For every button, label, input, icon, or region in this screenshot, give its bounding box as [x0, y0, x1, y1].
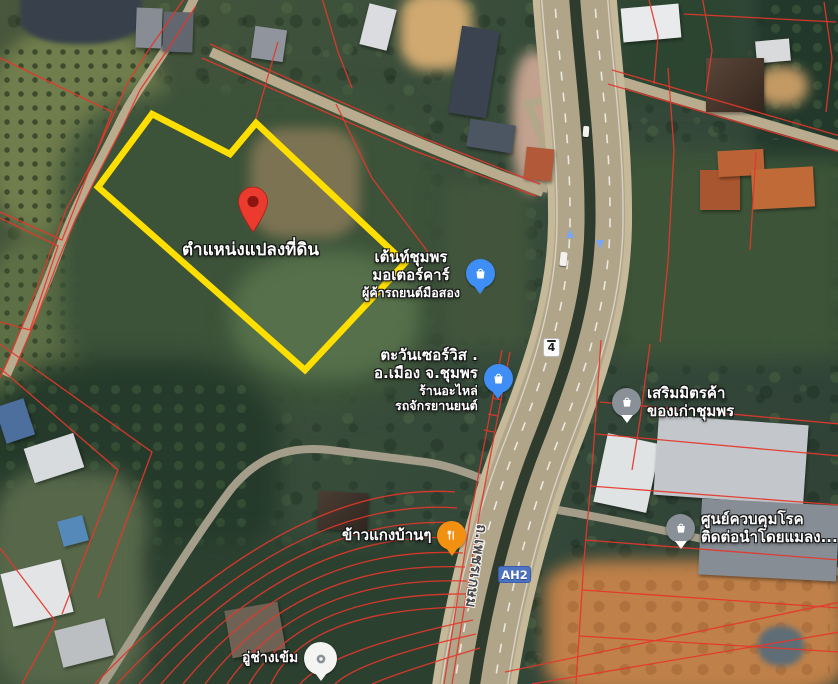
building	[523, 147, 554, 182]
poi-subline: รถจักรยานยนต์	[374, 398, 478, 413]
building-warehouse	[593, 433, 660, 513]
poi-disease-control: ศูนย์ควบคุมโรค ติดต่อนำโดยแมลง...	[666, 510, 838, 547]
terrain-field-left	[0, 235, 115, 425]
pond-bottomright	[758, 626, 804, 666]
roads-layer	[0, 0, 838, 684]
shield-number: 4	[548, 342, 556, 354]
cadastral-line	[576, 340, 601, 684]
building	[0, 398, 35, 443]
terrain-field-topleft	[0, 30, 165, 240]
cadastral-line	[585, 540, 838, 560]
cadastral-line	[608, 84, 838, 152]
cadastral-line	[0, 344, 152, 598]
cadastral-line	[0, 58, 112, 240]
road-winding-left	[6, 0, 197, 376]
building	[717, 149, 764, 177]
highway-median	[473, 0, 590, 684]
terrain-soil-frontage	[512, 52, 558, 192]
cadastral-strip	[271, 607, 471, 684]
cadastral-strip	[335, 634, 476, 684]
cadastral-line	[16, 6, 196, 366]
poi-line: ของเก่าชุมพร	[647, 402, 734, 420]
cadastral-line	[210, 44, 540, 184]
terrain-soil-mottle	[560, 575, 830, 684]
vegetation-texture	[0, 0, 838, 684]
poi-line: อ.เมือง จ.ชุมพร	[374, 364, 478, 382]
poi-line: ข้าวแกงบ้านๆ	[342, 526, 431, 544]
store-icon[interactable]	[612, 388, 641, 417]
cadastral-line	[202, 58, 536, 196]
building	[135, 8, 162, 49]
cadastral-line	[596, 434, 838, 456]
building	[751, 166, 815, 209]
terrain-sand-top	[400, 0, 472, 70]
building	[359, 3, 396, 51]
poi-line: ศูนย์ควบคุมโรค	[701, 510, 838, 528]
pond-topleft	[20, 0, 142, 44]
cadastral-line	[0, 218, 58, 330]
building	[54, 618, 114, 667]
parcel-boundary	[98, 114, 405, 370]
cadastral-strip	[227, 581, 467, 684]
cadastral-line	[0, 548, 56, 684]
road-bottomright	[558, 510, 838, 572]
shopping-bag-icon[interactable]	[484, 364, 513, 393]
building	[0, 559, 73, 626]
terrain-forest-parcel	[60, 90, 440, 410]
terrain-orchard-dots	[0, 45, 150, 230]
highway-surface	[473, 0, 590, 684]
cadastral-strip	[372, 648, 480, 684]
poi-label: อู่ช่างเข้ม	[242, 650, 298, 667]
building	[317, 491, 369, 532]
cadastral-line	[0, 0, 186, 382]
road-side-right	[610, 78, 838, 146]
parcel-boundary-layer	[0, 0, 838, 684]
car-repair-icon[interactable]	[304, 642, 337, 675]
poi-line: ติดต่อนำโดยแมลง...	[701, 528, 838, 546]
cadastral-strip	[139, 522, 459, 684]
terrain-bare-soil-bottomright	[545, 560, 838, 684]
building	[224, 602, 286, 659]
terrain-palm-dots-2	[765, 0, 838, 140]
parcel-location-label: ตำแหน่งแปลงที่ดิน	[148, 236, 353, 263]
cadastral-line	[532, 632, 838, 684]
cadastral-line	[336, 104, 428, 252]
road-name-label: ถ.เพชรเกษม	[462, 505, 496, 628]
cadastral-line	[702, 0, 712, 92]
poi-subline: ผู้ค้ารถยนต์มือสอง	[362, 285, 460, 300]
poi-line: ตะวันเซอร์วิส .	[374, 346, 478, 364]
poi-tawan-service: ตะวันเซอร์วิส . อ.เมือง จ.ชุมพร ร้านอะไห…	[374, 346, 513, 413]
building	[24, 433, 85, 483]
building-pavilion	[706, 58, 764, 112]
store-icon[interactable]	[666, 514, 695, 543]
shopping-bag-icon[interactable]	[466, 259, 495, 288]
cadastral-strip	[249, 594, 469, 684]
road-diagonal-top	[211, 52, 543, 192]
location-pin[interactable]	[236, 186, 270, 234]
highway-shoulder	[473, 0, 590, 684]
poi-label: ศูนย์ควบคุมโรค ติดต่อนำโดยแมลง...	[701, 510, 838, 547]
building	[621, 4, 682, 43]
cadastral-line	[0, 368, 118, 614]
traffic-arrow-up	[566, 229, 574, 238]
cadastral-line	[612, 70, 838, 136]
terrain-layer	[0, 0, 838, 684]
cadastral-line	[505, 602, 838, 672]
terrain-palms-bottomleft	[0, 360, 280, 580]
cadastral-line	[824, 2, 832, 112]
building	[162, 11, 193, 52]
poi-line: เต้นท์ชุมพร	[362, 248, 460, 266]
highway-shield: 4	[543, 338, 560, 357]
poi-label: ตะวันเซอร์วิส . อ.เมือง จ.ชุมพร ร้านอะไห…	[374, 346, 478, 413]
terrain-palm-dots	[0, 380, 250, 560]
building-warehouse	[698, 498, 838, 581]
terrain-soil-patch	[756, 66, 808, 106]
cadastral-line	[255, 42, 278, 122]
traffic-arrow-down	[596, 240, 604, 249]
building	[466, 119, 516, 154]
cadastral-strip	[95, 491, 455, 684]
building	[57, 515, 89, 547]
cadastral-line	[580, 636, 838, 652]
poi-serm-mit: เสริมมิตรค้า ของเก่าชุมพร	[612, 384, 734, 421]
route-badge-ah2: AH2	[498, 566, 531, 583]
building-warehouse	[653, 415, 808, 505]
cadastral-lines-layer	[0, 0, 838, 684]
building	[755, 39, 791, 64]
poi-tent-chumphon: เต้นท์ชุมพร มอเตอร์คาร์ ผู้ค้ารถยนต์มือส…	[362, 248, 495, 300]
road-frontage-top	[527, 78, 612, 192]
satellite-map[interactable]: ตำแหน่งแปลงที่ดิน เต้นท์ชุมพร มอเตอร์คาร…	[0, 0, 838, 684]
terrain-palms-topright	[755, 0, 838, 155]
poi-au-chang-khem: อู่ช่างเข้ม	[242, 642, 337, 675]
buildings-layer	[0, 0, 838, 684]
cadastral-line	[582, 590, 838, 608]
cadastral-line	[660, 68, 674, 342]
cadastral-line	[590, 486, 838, 505]
cadastral-strip	[117, 507, 457, 684]
building	[251, 26, 287, 62]
terrain-fields-bottomleft	[0, 470, 150, 684]
cadastral-line	[684, 14, 836, 22]
poi-khao-gaeng: ข้าวแกงบ้านๆ	[342, 521, 466, 550]
building	[448, 26, 499, 119]
cadastral-line	[750, 152, 756, 250]
terrain-trees-top	[620, 0, 740, 100]
poi-label: เต้นท์ชุมพร มอเตอร์คาร์ ผู้ค้ารถยนต์มือส…	[362, 248, 460, 300]
cadastral-strip	[205, 567, 465, 684]
pin-icon	[236, 186, 270, 234]
poi-line: อู่ช่างเข้ม	[242, 650, 298, 667]
poi-label: ข้าวแกงบ้านๆ	[342, 526, 431, 544]
restaurant-icon[interactable]	[437, 521, 466, 550]
cadastral-line	[648, 0, 658, 84]
vehicle	[583, 126, 590, 137]
poi-subline: ร้านอะไหล่	[374, 383, 478, 398]
poi-line: มอเตอร์คาร์	[362, 266, 460, 284]
terrain-orchard-dots-2	[0, 250, 105, 410]
poi-label: เสริมมิตรค้า ของเก่าชุมพร	[647, 384, 734, 421]
poi-line: เสริมมิตรค้า	[647, 384, 734, 402]
vehicle	[559, 252, 567, 267]
cadastral-line	[322, 0, 352, 88]
terrain-clearing	[230, 250, 420, 380]
building	[700, 170, 740, 210]
terrain-green-right	[615, 150, 838, 360]
